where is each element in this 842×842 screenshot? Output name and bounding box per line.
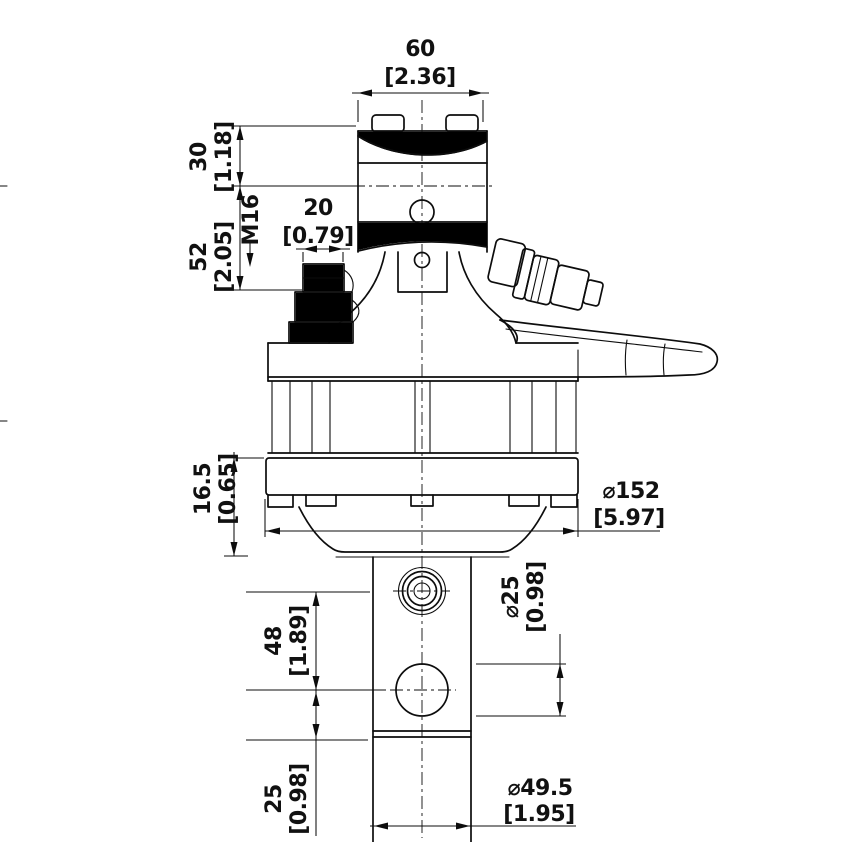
technical-drawing: 60 [2.36] 30 [1.18] 52 [2.05] M16 20 [0.…	[0, 0, 842, 842]
thread-callout: M16	[239, 194, 264, 267]
hydraulic-fittings	[485, 238, 608, 316]
dim-top-width: 60 [2.36]	[352, 37, 489, 122]
dim-hole-spacing: 48 [1.89]	[246, 592, 386, 690]
dim-body-height-inch: [2.05]	[212, 221, 237, 292]
dim-hole-end-offset-inch: [0.98]	[287, 763, 312, 834]
dim-cap-height-mm: 30	[187, 142, 212, 172]
dim-body-height-mm: 52	[187, 242, 212, 272]
hook-arm	[500, 320, 717, 377]
dim-port-inch: [0.79]	[282, 224, 353, 249]
dim-hole-end-offset: 25 [0.98]	[246, 690, 368, 836]
dim-hole-spacing-inch: [1.89]	[287, 605, 312, 676]
dim-flange-diameter-mm: ⌀152	[602, 479, 659, 504]
dim-hole-spacing-mm: 48	[262, 626, 287, 656]
top-motor-block	[358, 115, 487, 252]
dim-port: 20 [0.79]	[282, 196, 353, 262]
dim-cap-height: 30 [1.18]	[187, 121, 356, 192]
dim-pin-hole-mm: ⌀25	[499, 576, 524, 618]
dim-pin-hole-inch: [0.98]	[524, 561, 549, 632]
dim-pin-hole: ⌀25 [0.98]	[476, 561, 566, 716]
rotator-section-view: 60 [2.36] 30 [1.18] 52 [2.05] M16 20 [0.…	[0, 0, 842, 842]
dim-shaft-diameter: ⌀49.5 [1.95]	[370, 776, 576, 830]
dim-flange-thickness-inch: [0.65]	[216, 453, 241, 524]
dim-hole-end-offset-mm: 25	[262, 784, 287, 814]
left-port-fitting	[268, 264, 359, 343]
cap-boss-right	[446, 115, 478, 132]
cap-boss-left	[372, 115, 404, 132]
dim-flange-diameter: ⌀152 [5.97]	[265, 479, 665, 537]
dim-shaft-diameter-inch: [1.95]	[503, 802, 574, 827]
dim-flange-thickness-mm: 16.5	[191, 463, 216, 515]
flange-plate-and-ribs	[268, 343, 578, 453]
dim-flange-diameter-inch: [5.97]	[593, 506, 664, 531]
dim-port-mm: 20	[303, 196, 333, 221]
thread-label: M16	[239, 194, 264, 245]
dim-shaft-diameter-mm: ⌀49.5	[507, 776, 572, 801]
dim-top-width-mm: 60	[405, 37, 435, 62]
dim-top-width-inch: [2.36]	[384, 65, 455, 90]
dim-cap-height-inch: [1.18]	[212, 121, 237, 192]
dim-flange-thickness: 16.5 [0.65]	[191, 452, 264, 556]
upper-bell-neck	[329, 252, 516, 343]
